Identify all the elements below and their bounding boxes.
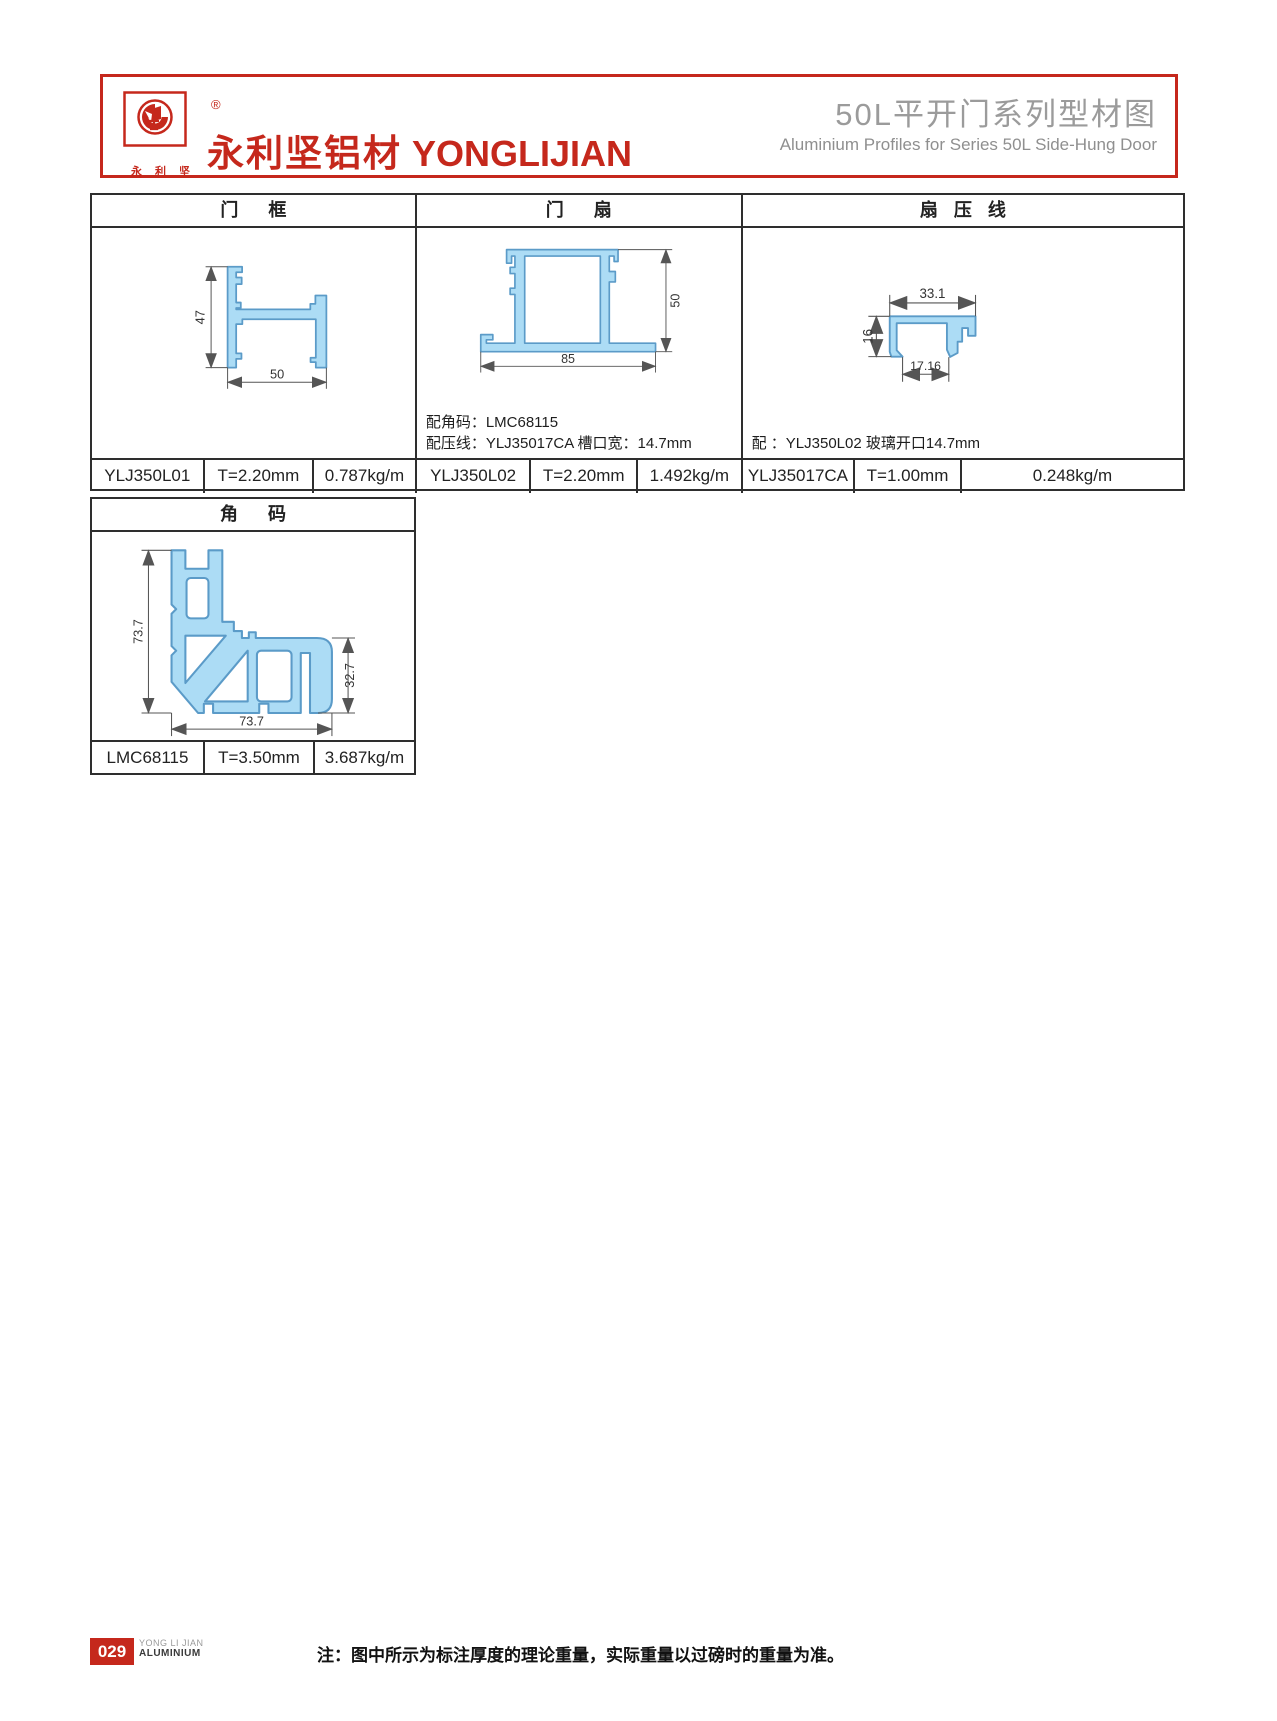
bead-drawing-cell: 33.1 16 17.16 配 ：YLJ350L02 玻璃开口14.7mm <box>743 228 1183 458</box>
sash-profile-drawing: 85 50 <box>467 236 692 382</box>
company-name: 永利坚铝材YONGLIJIAN <box>207 123 632 177</box>
bead-profile-drawing: 33.1 16 17.16 <box>859 280 1014 398</box>
column-header-bead: 扇压线 <box>743 195 1183 228</box>
sash-note-corner-key: 配角码：LMC68115 <box>426 412 692 434</box>
frame-width-dim-label: 50 <box>270 367 284 382</box>
logo-graphic <box>123 91 187 147</box>
sash-drawing-cell: 85 50 配角码：LMC68115 配压线：YLJ35017CA 槽口宽：14… <box>417 228 743 458</box>
sash-width-dim-label: 85 <box>561 352 575 366</box>
corner-weight: 3.687kg/m <box>315 742 414 775</box>
bead-profile-section <box>889 316 975 357</box>
corner-thickness: T=3.50mm <box>205 742 315 775</box>
page-subtitle: Aluminium Profiles for Series 50L Side-H… <box>780 135 1157 155</box>
sash-height-dim-label: 50 <box>668 294 682 308</box>
column-header-frame: 门框 <box>92 195 417 228</box>
corner-cavity-arm <box>257 651 292 702</box>
bead-notes: 配 ：YLJ350L02 玻璃开口14.7mm <box>752 433 980 455</box>
corner-profile-section <box>172 550 332 713</box>
sash-note-bead-match: 配压线：YLJ35017CA 槽口宽：14.7mm <box>426 433 692 455</box>
corner-key-data-row: LMC68115 T=3.50mm 3.687kg/m <box>92 740 414 775</box>
header-band: ® 永利坚 永利坚铝材YONGLIJIAN 50L平开门系列型材图 Alumin… <box>100 74 1178 178</box>
frame-weight: 0.787kg/m <box>314 460 417 493</box>
company-name-cn: 永利坚铝材 <box>207 133 402 174</box>
bead-bottom-dim-label: 17.16 <box>910 359 941 373</box>
sash-profile-section <box>481 250 656 352</box>
page-title: 50L平开门系列型材图 <box>835 89 1157 134</box>
profiles-table-drawing-row: 47 50 <box>92 228 1183 458</box>
bead-left-dim-label: 16 <box>860 329 875 344</box>
footer-brand: YONG LI JIAN ALUMINIUM <box>139 1638 204 1660</box>
registered-mark: ® <box>211 97 221 112</box>
corner-cavity-top <box>187 578 209 618</box>
frame-profile-drawing: 47 50 <box>188 252 364 398</box>
frame-thickness: T=2.20mm <box>205 460 315 493</box>
profiles-table: 门框 门扇 扇压线 <box>90 193 1185 491</box>
bead-note-match: 配 ：YLJ350L02 玻璃开口14.7mm <box>752 433 980 455</box>
corner-drawing-cell: 73.7 73.7 32.7 <box>92 532 414 740</box>
sash-weight: 1.492kg/m <box>638 460 743 493</box>
company-name-en: YONGLIJIAN <box>412 133 632 174</box>
bead-thickness: T=1.00mm <box>855 460 962 493</box>
profiles-table-header-row: 门框 门扇 扇压线 <box>92 195 1183 228</box>
column-header-corner: 角码 <box>92 499 414 532</box>
frame-code: YLJ350L01 <box>92 460 205 493</box>
sash-thickness: T=2.20mm <box>531 460 638 493</box>
footer-brand-aluminium: ALUMINIUM <box>139 1648 204 1660</box>
frame-height-dim-label: 47 <box>193 310 208 324</box>
corner-left-dim-label: 73.7 <box>132 619 146 644</box>
footer-note: 注：图中所示为标注厚度的理论重量，实际重量以过磅时的重量为准。 <box>317 1641 844 1666</box>
frame-dimension-lines <box>206 267 327 389</box>
corner-right-dim-label: 32.7 <box>343 663 357 688</box>
bead-top-dim-label: 33.1 <box>919 286 945 301</box>
corner-code: LMC68115 <box>92 742 205 775</box>
frame-profile-section <box>228 267 327 368</box>
column-header-sash: 门扇 <box>417 195 743 228</box>
corner-bottom-dim-label: 73.7 <box>239 715 264 729</box>
catalog-page: ® 永利坚 永利坚铝材YONGLIJIAN 50L平开门系列型材图 Alumin… <box>0 0 1277 1721</box>
bead-code: YLJ35017CA <box>743 460 856 493</box>
corner-key-header-row: 角码 <box>92 499 414 532</box>
footer-brand-name: YONG LI JIAN <box>139 1638 204 1648</box>
sash-notes: 配角码：LMC68115 配压线：YLJ35017CA 槽口宽：14.7mm <box>426 412 692 456</box>
profiles-table-data-row: YLJ350L01 T=2.20mm 0.787kg/m YLJ350L02 T… <box>92 458 1183 493</box>
bead-weight: 0.248kg/m <box>962 460 1183 493</box>
corner-key-drawing-row: 73.7 73.7 32.7 <box>92 532 414 740</box>
sash-code: YLJ350L02 <box>417 460 532 493</box>
corner-key-table: 角码 <box>90 497 416 775</box>
page-number-badge: 029 <box>90 1638 134 1665</box>
corner-profile-drawing: 73.7 73.7 32.7 <box>130 534 370 742</box>
company-logo: ® 永利坚 <box>123 91 187 147</box>
frame-drawing-cell: 47 50 <box>92 228 417 458</box>
